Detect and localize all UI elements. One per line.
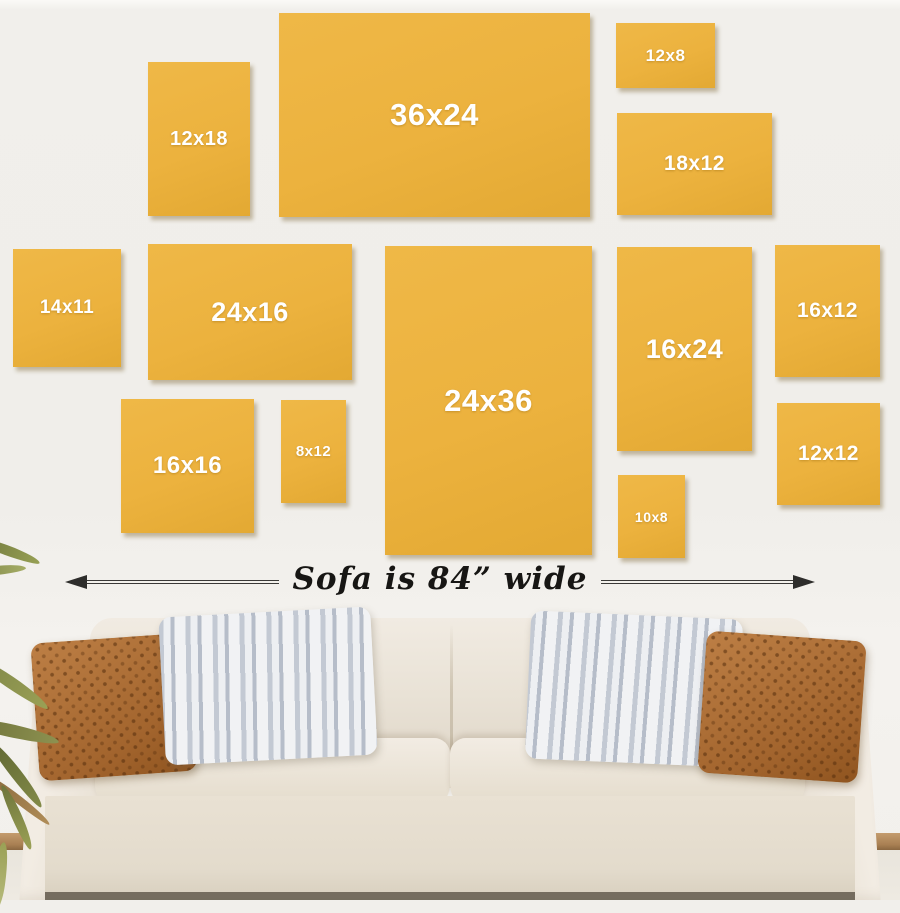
size-guide-image: 12x1836x2412x818x1214x1124x1624x3616x241… [0,0,900,900]
pillow-brown-right [697,631,867,784]
sofa-base [45,796,855,900]
pillow-striped-left [158,607,377,766]
sofa [0,0,900,900]
